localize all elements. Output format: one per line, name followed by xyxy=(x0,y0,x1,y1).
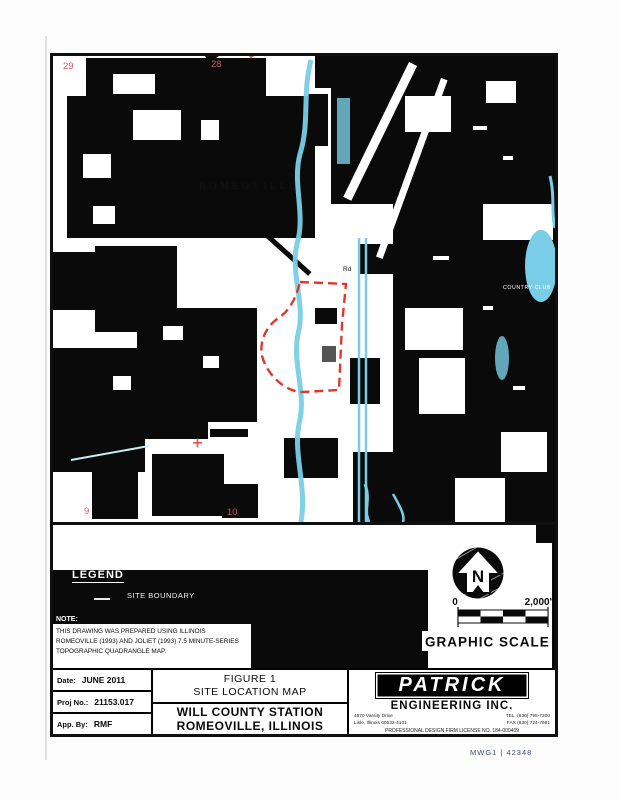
firm-license: PROFESSIONAL DESIGN FIRM LICENSE NO. 184… xyxy=(349,728,555,734)
firm-address-line2: Lisle, Illinois 60532-4101 xyxy=(354,720,407,728)
scan-artifact-line xyxy=(45,36,47,760)
app-by-value: RMF xyxy=(94,719,112,729)
project-name: WILL COUNTY STATION xyxy=(177,705,324,719)
topo-map-canvas: 29 28 9 10 ROMEOVILLE Rd COUNTRY CLUB xyxy=(53,56,555,522)
section-number-se: 10 xyxy=(227,507,238,518)
title-block-figure-column: FIGURE 1 SITE LOCATION MAP WILL COUNTY S… xyxy=(153,670,349,734)
section-number-sw: 9 xyxy=(84,506,89,517)
title-block: Date: JUNE 2011 Proj No.: 21153.017 App.… xyxy=(53,668,555,734)
site-boundary-outline xyxy=(261,282,346,392)
note-box: THIS DRAWING WAS PREPARED USING ILLINOIS… xyxy=(53,624,251,671)
title-block-info-column: Date: JUNE 2011 Proj No.: 21153.017 App.… xyxy=(53,670,153,734)
scale-max-label: 2,000' xyxy=(525,597,552,608)
section-number-nw: 29 xyxy=(63,61,74,72)
figure-name: SITE LOCATION MAP xyxy=(193,686,306,699)
firm-logo: PATRICK xyxy=(375,672,529,699)
country-club-label: COUNTRY CLUB xyxy=(503,285,551,291)
town-label: ROMEOVILLE xyxy=(199,181,299,192)
project-location: ROMEOVILLE, ILLINOIS xyxy=(177,719,324,733)
drawing-frame: 29 28 9 10 ROMEOVILLE Rd COUNTRY CLUB LE… xyxy=(50,53,558,737)
note-line: THIS DRAWING WAS PREPARED USING ILLINOIS xyxy=(56,627,248,637)
scale-zero-label: 0 xyxy=(452,597,458,608)
compass-north-icon: N xyxy=(446,533,518,605)
site-boundary-symbol xyxy=(94,598,110,600)
app-by-label: App. By: xyxy=(57,720,88,729)
proj-no-value: 21153.017 xyxy=(94,697,134,707)
figure-title: FIGURE 1 SITE LOCATION MAP xyxy=(153,670,347,704)
note-heading: NOTE: xyxy=(56,616,78,623)
site-boundary-label: SITE BOUNDARY xyxy=(127,591,195,600)
section-number-ne: 28 xyxy=(211,59,222,70)
compass-n-letter: N xyxy=(472,567,484,586)
note-line: TOPOGRAPHIC QUADRANGLE MAP. xyxy=(56,647,248,657)
note-line: ROMEOVILLE (1993) AND JOLIET (1993) 7.5 … xyxy=(56,637,248,647)
figure-number: FIGURE 1 xyxy=(224,673,276,686)
proj-no-label: Proj No.: xyxy=(57,698,88,707)
compass-scale-graphic: N 0 2,000' xyxy=(428,543,552,671)
firm-address-block: 4970 Varsity Drive Lisle, Illinois 60532… xyxy=(349,712,555,728)
date-row: Date: JUNE 2011 xyxy=(53,670,151,692)
road-label: Rd xyxy=(343,266,352,273)
firm-tel: TEL. (630) 795-7200 xyxy=(506,713,550,721)
date-value: JUNE 2011 xyxy=(82,675,125,685)
survey-cross-mark xyxy=(197,438,199,447)
firm-phone: TEL. (630) 795-7200 FAX (630) 724-7681 xyxy=(506,713,550,728)
firm-fax: FAX (630) 724-7681 xyxy=(506,720,550,728)
scale-caption: GRAPHIC SCALE xyxy=(425,635,550,650)
graphic-scale-bar: 0 2,000' xyxy=(422,597,552,651)
legend-band: LEGEND SITE BOUNDARY NOTE: THIS DRAWING … xyxy=(53,525,555,671)
firm-subtitle: ENGINEERING INC. xyxy=(349,700,555,712)
firm-name: PATRICK xyxy=(399,674,506,697)
legend-title: LEGEND xyxy=(72,569,124,583)
approved-by-row: App. By: RMF xyxy=(53,714,151,734)
date-label: Date: xyxy=(57,676,76,685)
title-block-firm-column: PATRICK ENGINEERING INC. 4970 Varsity Dr… xyxy=(349,670,555,734)
topo-map: 29 28 9 10 ROMEOVILLE Rd COUNTRY CLUB xyxy=(53,56,555,525)
project-title: WILL COUNTY STATION ROMEOVILLE, ILLINOIS xyxy=(153,704,347,734)
corner-annotation: MWG1 | 42348 xyxy=(470,748,532,757)
firm-address: 4970 Varsity Drive Lisle, Illinois 60532… xyxy=(354,713,407,728)
compass-scale-panel: N 0 2,000' xyxy=(428,543,552,671)
firm-address-line1: 4970 Varsity Drive xyxy=(354,713,407,721)
project-number-row: Proj No.: 21153.017 xyxy=(53,692,151,714)
scale-checker-segments xyxy=(458,610,548,623)
